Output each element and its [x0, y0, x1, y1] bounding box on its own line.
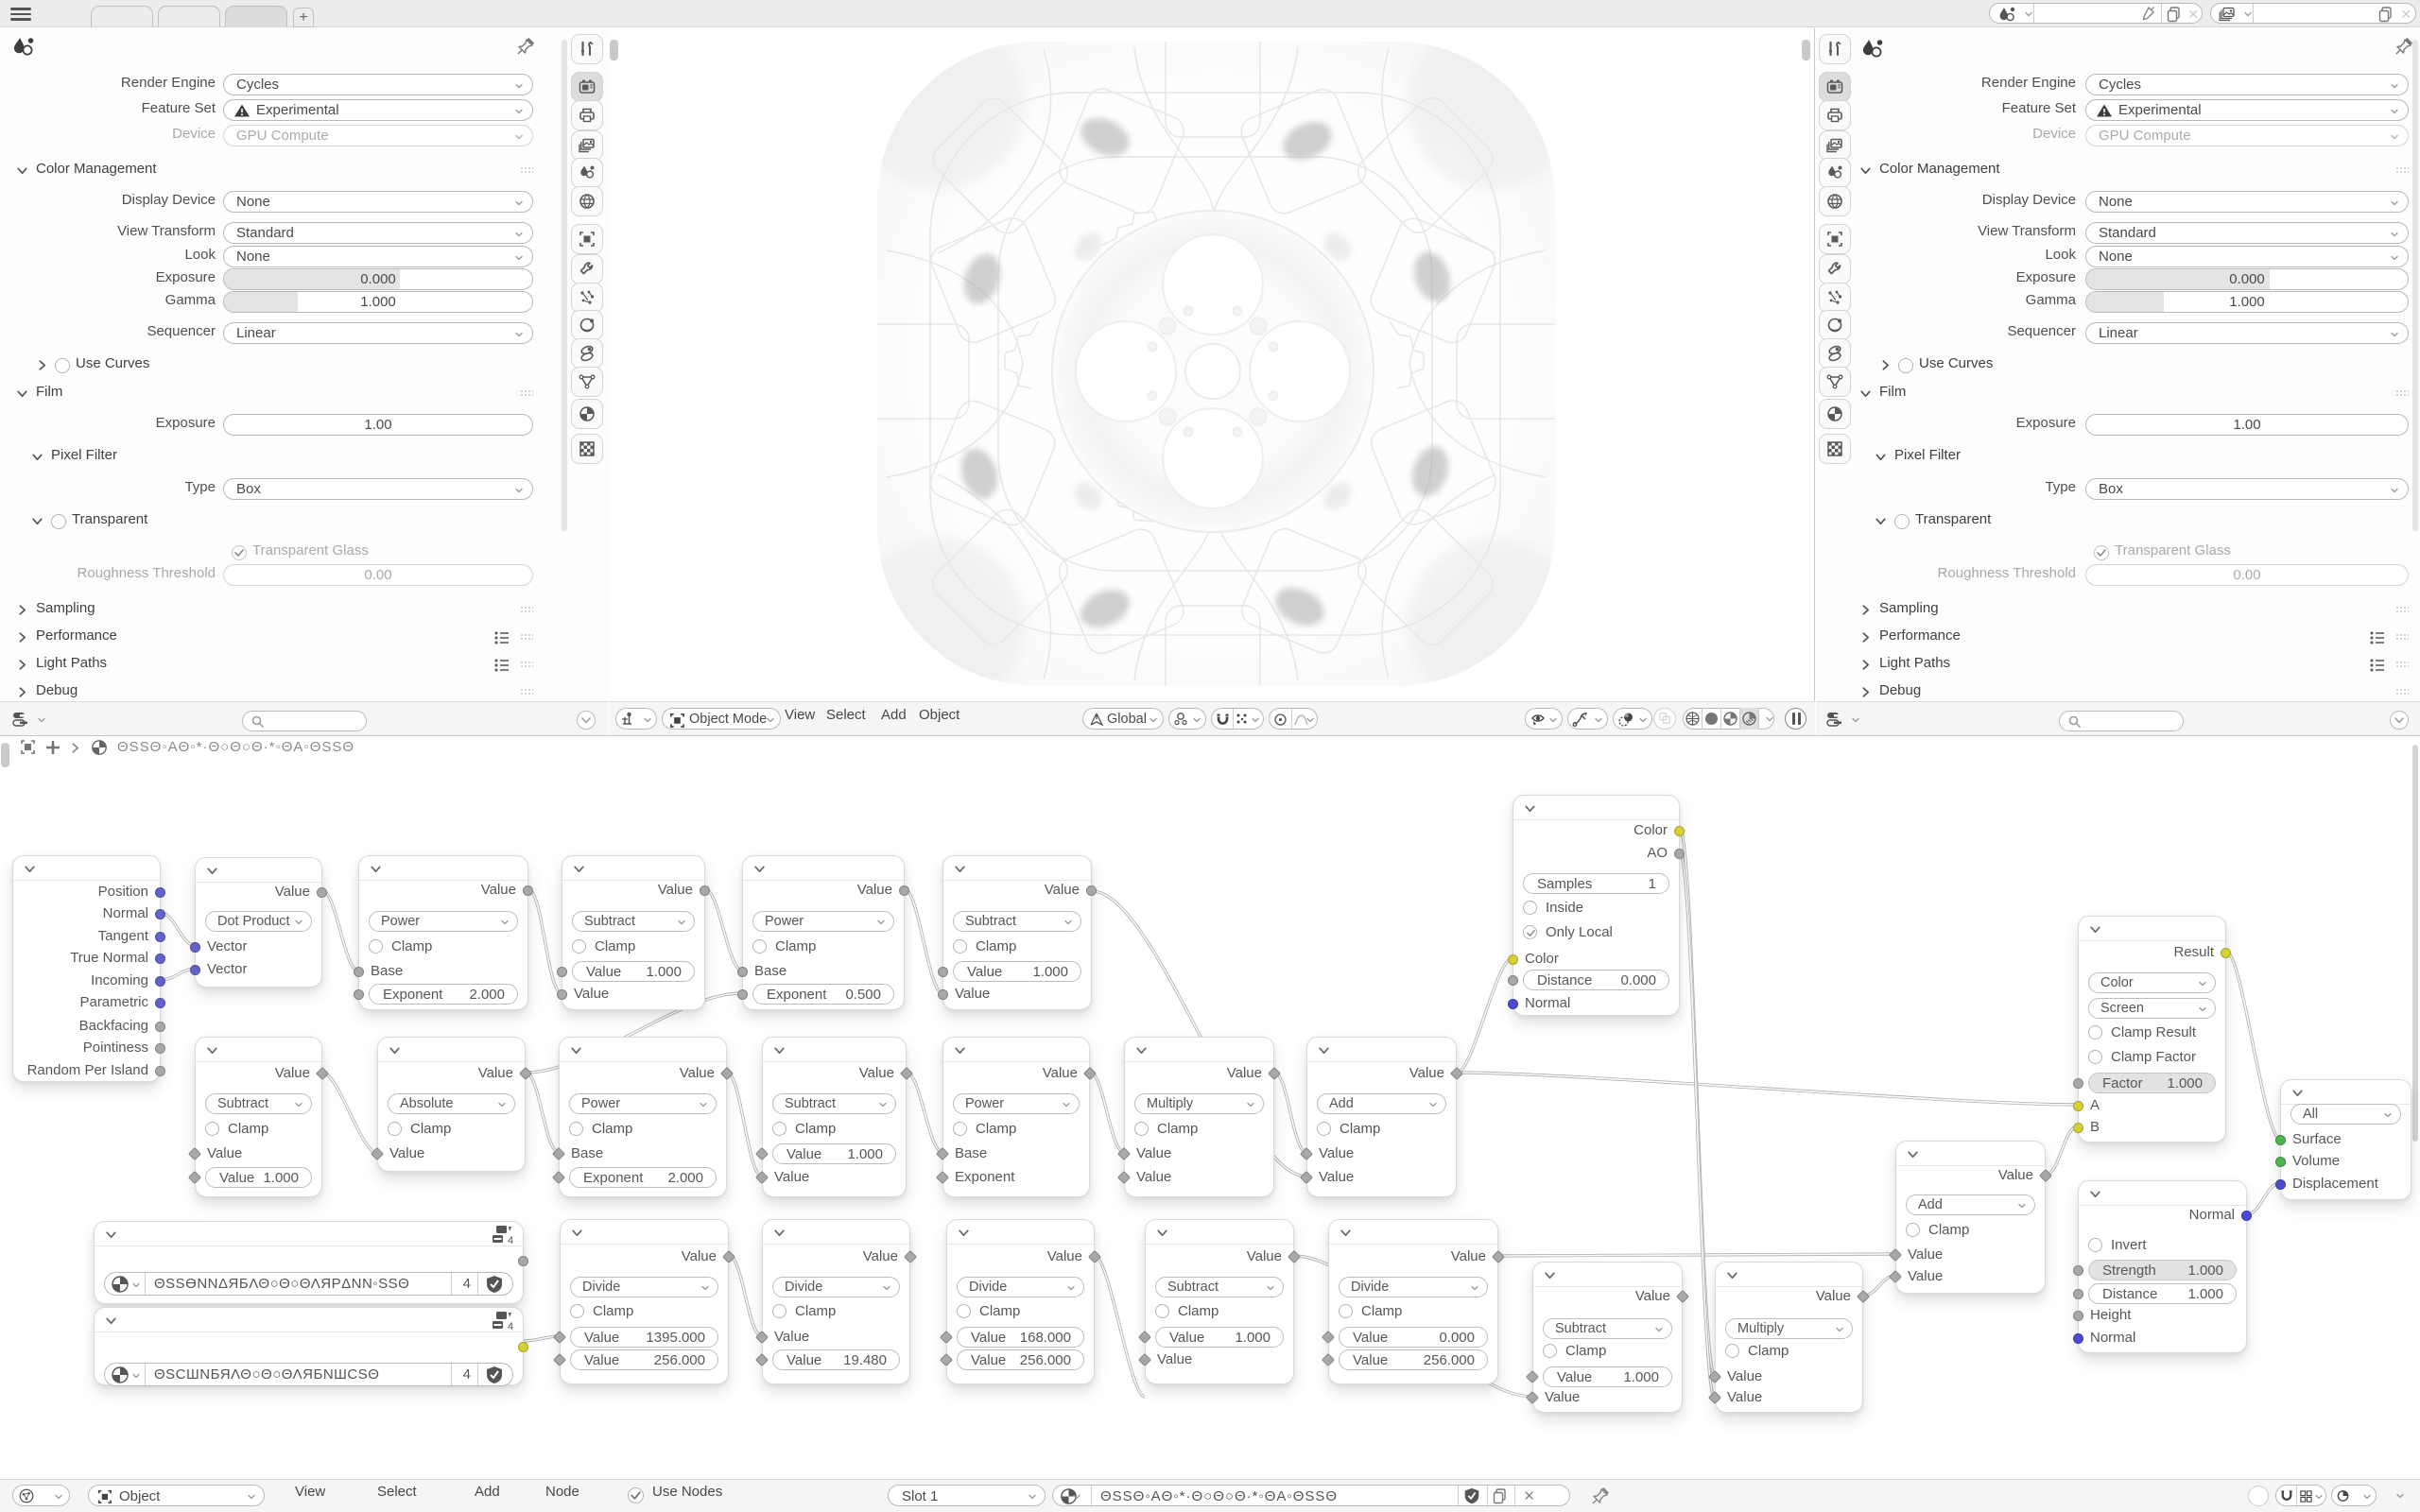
- svg-text:4: 4: [508, 1235, 513, 1246]
- svg-text:4: 4: [508, 1321, 513, 1332]
